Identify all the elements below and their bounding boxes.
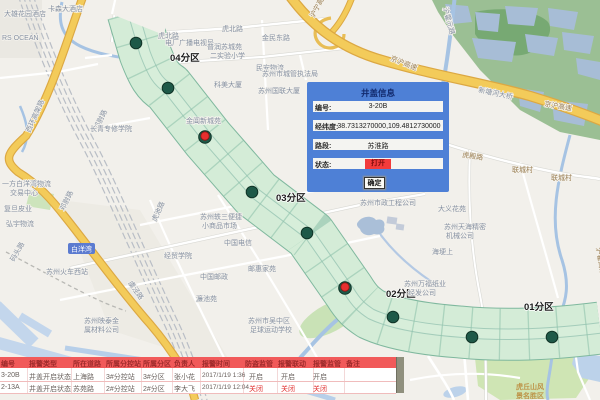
svg-text:卡森大酒店: 卡森大酒店 [48, 4, 83, 13]
svg-text:RS OCEAN: RS OCEAN [2, 35, 39, 42]
svg-text:属材料公司: 属材料公司 [84, 325, 119, 334]
svg-text:虎丘山风: 虎丘山风 [516, 382, 544, 391]
svg-text:景名胜区: 景名胜区 [515, 391, 544, 400]
svg-text:苏州市政工程公司: 苏州市政工程公司 [360, 198, 416, 207]
svg-text:苏州火车西站: 苏州火车西站 [46, 267, 88, 276]
svg-text:经发公司: 经发公司 [408, 288, 436, 297]
svg-text:海埂上: 海埂上 [432, 247, 453, 256]
svg-text:足球运动学校: 足球运动学校 [250, 325, 292, 334]
svg-text:虎北路: 虎北路 [222, 24, 243, 33]
svg-text:01分区: 01分区 [524, 301, 554, 313]
svg-text:苏州天海精密: 苏州天海精密 [444, 222, 486, 231]
svg-text:虎北路: 虎北路 [158, 31, 179, 40]
svg-text:金阊新城苑: 金阊新城苑 [186, 116, 221, 125]
svg-text:大义花苑: 大义花苑 [438, 204, 466, 213]
svg-text:科美大厦: 科美大厦 [214, 80, 242, 89]
svg-text:弘宇物流: 弘宇物流 [6, 219, 34, 228]
svg-text:金民东路: 金民东路 [262, 33, 290, 42]
svg-text:白洋湾: 白洋湾 [71, 245, 92, 254]
svg-text:苏州国联大厦: 苏州国联大厦 [258, 86, 300, 95]
svg-text:小商品市场: 小商品市场 [202, 221, 237, 230]
svg-text:邮惠家苑: 邮惠家苑 [248, 264, 276, 273]
svg-text:中国邮政: 中国邮政 [200, 272, 228, 281]
svg-text:机械公司: 机械公司 [446, 231, 474, 240]
svg-text:04分区: 04分区 [170, 52, 200, 64]
svg-text:03分区: 03分区 [276, 192, 306, 204]
svg-text:苏州万福纸业: 苏州万福纸业 [404, 279, 446, 288]
svg-text:普润苏城苑: 普润苏城苑 [207, 42, 242, 51]
svg-text:联城村: 联城村 [512, 165, 533, 174]
svg-text:苏州轶三便捷: 苏州轶三便捷 [200, 212, 242, 221]
svg-text:苏州市城管执法局: 苏州市城管执法局 [262, 69, 318, 78]
svg-text:交易中心: 交易中心 [10, 188, 38, 197]
svg-text:苏州映泰金: 苏州映泰金 [84, 316, 119, 325]
svg-text:长青专修学院: 长青专修学院 [90, 124, 132, 133]
svg-text:经贸学院: 经贸学院 [164, 251, 192, 260]
svg-text:联城村: 联城村 [551, 173, 572, 182]
svg-text:复旦皮业: 复旦皮业 [4, 204, 32, 213]
svg-text:二实验小学: 二实验小学 [210, 51, 245, 60]
svg-text:一方白洋湾物流: 一方白洋湾物流 [2, 179, 51, 188]
svg-text:苏州市吴中区: 苏州市吴中区 [248, 316, 290, 325]
svg-text:大雄花园酒店: 大雄花园酒店 [4, 9, 46, 18]
svg-text:濂池苑: 濂池苑 [196, 294, 217, 303]
svg-text:中国电信: 中国电信 [224, 238, 252, 247]
